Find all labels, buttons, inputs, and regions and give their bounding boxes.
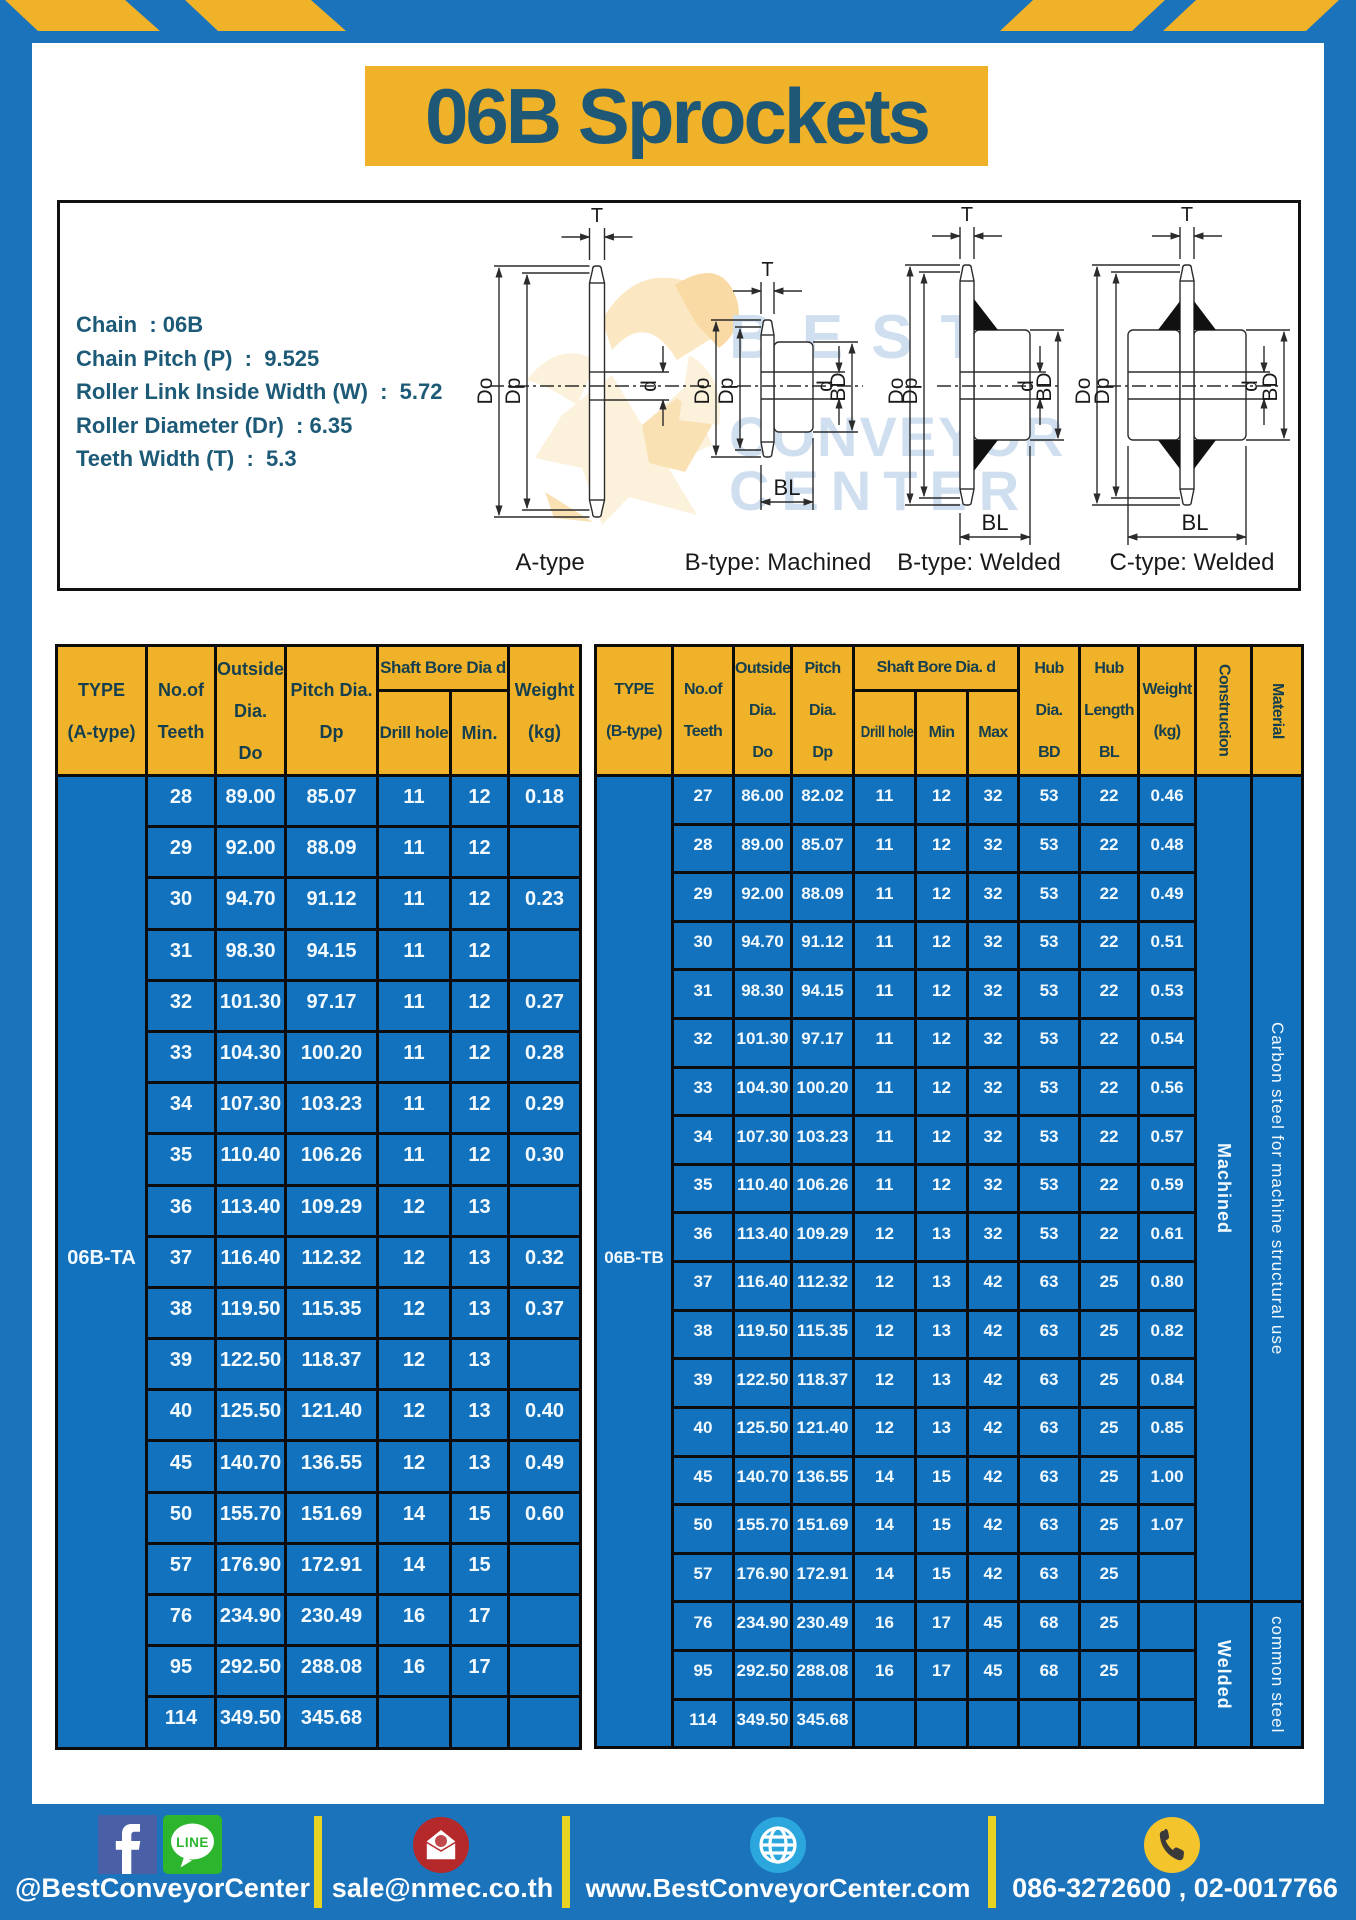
svg-text:B-type: Welded: B-type: Welded xyxy=(897,549,1061,576)
svg-text:C-type: Welded: C-type: Welded xyxy=(1110,549,1275,576)
svg-text:BL: BL xyxy=(1182,510,1209,535)
svg-text:T: T xyxy=(591,205,603,227)
svg-text:B-type: Machined: B-type: Machined xyxy=(685,549,872,576)
svg-text:BD: BD xyxy=(827,372,850,401)
svg-text:BD: BD xyxy=(1259,372,1282,401)
svg-text:BD: BD xyxy=(1033,372,1056,401)
svg-text:Dp: Dp xyxy=(715,378,738,405)
svg-text:Dp: Dp xyxy=(899,378,922,405)
svg-text:A-type: A-type xyxy=(515,549,584,576)
svg-text:T: T xyxy=(1181,204,1193,226)
svg-text:T: T xyxy=(761,259,773,281)
svg-text:BL: BL xyxy=(774,475,801,500)
svg-text:Dp: Dp xyxy=(1091,378,1114,405)
svg-text:Do: Do xyxy=(691,378,714,405)
svg-text:d: d xyxy=(638,380,661,392)
svg-text:LINE: LINE xyxy=(176,1835,209,1850)
svg-text:BL: BL xyxy=(982,510,1009,535)
svg-text:T: T xyxy=(961,204,973,226)
